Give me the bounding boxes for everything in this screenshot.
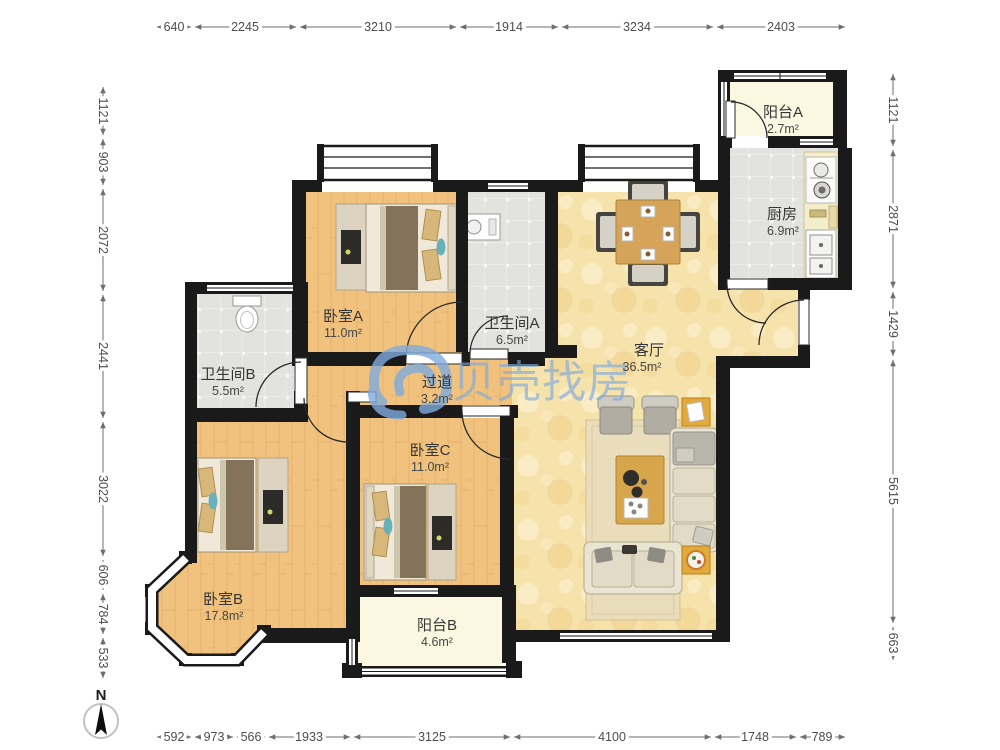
washing-machine-icon [464,214,500,240]
window-icon [346,639,358,665]
floorplan-canvas: 贝壳找房 阳台A 2.7m² 厨房 6.9m² 卧室A 11.0m² 卫生间A … [0,0,1000,750]
entry-floor [718,282,798,356]
dim-label: 1914 [495,20,523,34]
floorplan-image: 贝壳找房 阳台A 2.7m² 厨房 6.9m² 卧室A 11.0m² 卫生间A … [0,0,1000,750]
bed-icon [364,484,426,580]
room-area: 17.8m² [205,609,244,623]
room-area: 2.7m² [767,122,799,136]
side-table-icon [682,546,710,574]
wardrobe-icon [336,204,366,290]
coffee-table-icon [616,456,664,524]
dim-label: 903 [96,152,110,173]
dim-label: 2441 [96,342,110,370]
side-table-icon [682,398,710,426]
north-arrow-icon: N [84,687,118,738]
room-name: 阳台B [417,617,457,634]
window-icon [578,144,700,182]
room-name: 厨房 [767,206,797,223]
room-name: 卧室B [203,591,243,608]
window-icon [362,666,506,677]
room-area: 3.2m² [421,392,453,406]
room-name: 过道 [422,374,452,391]
dim-label: 1429 [886,310,900,338]
tv-icon [432,516,452,550]
room-area: 36.5m² [623,360,662,374]
kitchen-counter [804,152,838,280]
dim-label: 2403 [767,20,795,34]
dim-label: 784 [96,604,110,625]
dim-label: 566 [241,730,262,744]
stove-icon [806,157,836,203]
dim-label: 789 [812,730,833,744]
dim-label: 3125 [418,730,446,744]
wardrobe-icon [428,484,456,580]
room-name: 阳台A [763,104,803,121]
dim-label: 640 [164,20,185,34]
bed-icon [366,204,458,292]
armchair-icon [642,396,678,434]
dim-label: 1933 [295,730,323,744]
room-area: 6.5m² [496,333,528,347]
window-icon [317,144,438,182]
dim-label: 1748 [741,730,769,744]
dim-label: 3210 [364,20,392,34]
sink-icon [806,230,836,278]
sofa-icon [670,428,718,552]
window-icon [207,282,293,294]
room-area: 5.5m² [212,384,244,398]
dim-label: 3022 [96,475,110,503]
dim-label: 663 [886,633,900,654]
window-icon [488,180,528,192]
wardrobe-icon [258,458,288,552]
room-area: 11.0m² [324,326,362,340]
dim-label: 4100 [598,730,626,744]
room-name: 卧室A [323,308,363,325]
north-label: N [96,687,107,704]
tv-icon [341,230,361,264]
dim-label: 2072 [96,226,110,254]
room-name: 卫生间A [484,315,539,332]
room-name: 卫生间B [200,366,255,383]
dim-label: 592 [164,730,185,744]
room-area: 4.6m² [421,635,453,649]
window-icon [800,136,833,148]
dim-label: 973 [204,730,225,744]
room-name: 客厅 [634,342,664,359]
window-icon [394,585,438,597]
dim-label: 3234 [623,20,651,34]
dim-label: 1121 [96,98,110,125]
dim-label: 533 [96,648,110,669]
watermark-text: 贝壳找房 [452,358,632,407]
room-name: 卧室C [410,442,451,459]
window-icon [560,630,712,642]
loveseat-icon [584,542,682,594]
room-area: 6.9m² [767,224,799,238]
bed-icon [188,458,256,552]
dim-label: 1121 [886,97,900,124]
window-icon [734,70,826,82]
tv-icon [263,490,283,524]
room-area: 11.0m² [411,460,449,474]
dim-label: 606 [96,565,110,586]
dim-label: 2871 [886,205,900,233]
dim-label: 2245 [231,20,259,34]
dim-label: 5615 [886,477,900,505]
